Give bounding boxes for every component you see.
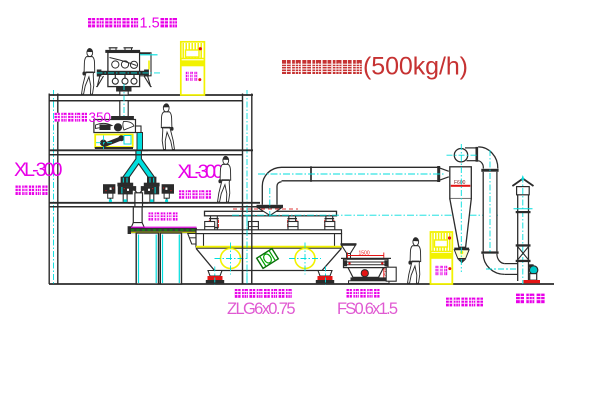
svg-text:350: 350: [89, 110, 112, 125]
svg-text:XL-300: XL-300: [14, 159, 63, 181]
svg-text:FS0.6x1.5: FS0.6x1.5: [337, 300, 398, 318]
svg-text:ZLG6x0.75: ZLG6x0.75: [227, 300, 296, 318]
svg-text:1.5: 1.5: [140, 16, 160, 32]
svg-text:1500: 1500: [359, 250, 370, 256]
svg-text:XL-300: XL-300: [178, 161, 224, 183]
svg-text:F600: F600: [454, 180, 466, 186]
svg-text:(500kg/h): (500kg/h): [363, 53, 468, 81]
